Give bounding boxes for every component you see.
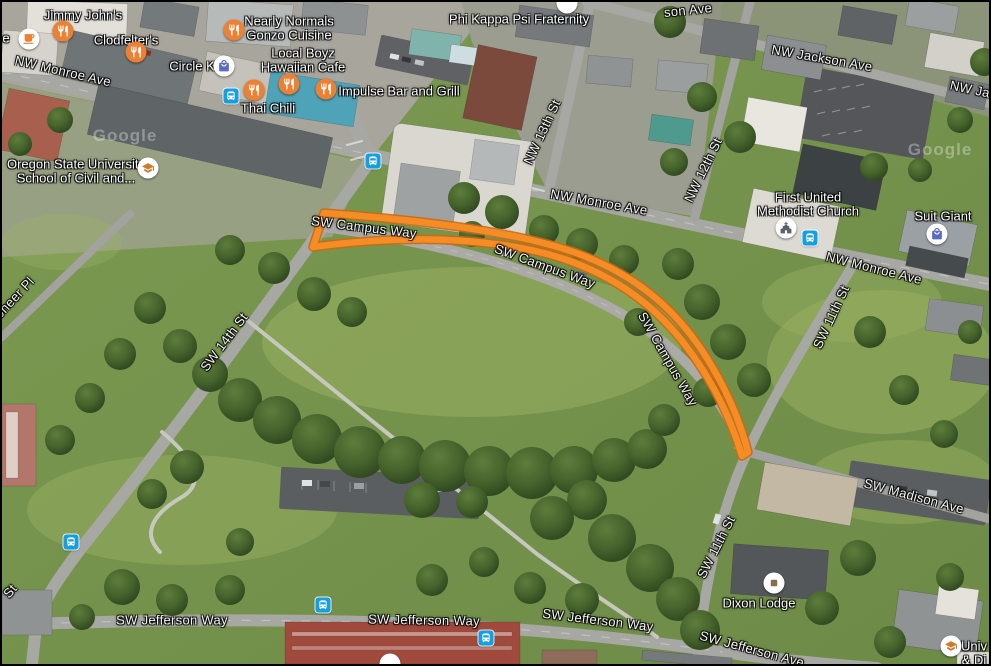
bus-stop-icon[interactable] [224, 89, 239, 104]
bus-stop-icon[interactable] [316, 598, 331, 613]
school-icon[interactable] [138, 158, 159, 179]
poi-label-first-united-methodist[interactable]: First UnitedMethodist Church [757, 191, 859, 218]
shopping-bag-icon[interactable] [927, 224, 948, 245]
restaurant-icon[interactable] [224, 20, 245, 41]
poi-label-university-partial[interactable]: Univ& Di [961, 640, 987, 666]
street-label-sw-jefferson-way-1: SW Jefferson Way [116, 614, 228, 627]
poi-label-dixon-lodge[interactable]: Dixon Lodge [723, 597, 796, 610]
map-viewport[interactable]: Google Google NW Monroe Ave NW Monroe Av… [0, 0, 991, 666]
poi-label-jimmy-johns[interactable]: Jimmy John's [44, 9, 122, 22]
bus-stop-icon[interactable] [64, 535, 79, 550]
church-icon[interactable] [776, 218, 797, 239]
restaurant-icon[interactable] [279, 74, 300, 95]
restaurant-icon[interactable] [126, 42, 147, 63]
lodge-icon[interactable] [764, 573, 785, 594]
poi-label-phi-kappa-psi[interactable]: Phi Kappa Psi Fraternity [449, 13, 589, 26]
cafe-icon[interactable] [19, 29, 40, 50]
bus-stop-icon[interactable] [479, 631, 494, 646]
poi-label-nearly-normals[interactable]: Nearly NormalsGonzo Cuisine [244, 15, 334, 42]
poi-label-local-boyz[interactable]: Local BoyzHawaiian Cafe [261, 47, 346, 74]
poi-label-thai-chili[interactable]: Thai Chili [241, 102, 295, 115]
poi-label-partial-e[interactable]: e [2, 32, 9, 45]
google-watermark: Google [908, 140, 973, 160]
bus-stop-icon[interactable] [366, 154, 381, 169]
poi-label-impulse-bar[interactable]: Impulse Bar and Grill [338, 85, 459, 98]
street-label-sw-jefferson-way-2: SW Jefferson Way [368, 613, 480, 628]
poi-label-suit-giant[interactable]: Suit Giant [914, 210, 971, 223]
google-watermark: Google [93, 126, 158, 146]
restaurant-icon[interactable] [316, 79, 337, 100]
school-icon[interactable] [941, 636, 962, 657]
poi-label-clodfelters[interactable]: Clodfelter's [94, 34, 159, 47]
bus-stop-icon[interactable] [803, 231, 818, 246]
poi-label-osu-school[interactable]: Oregon State UniversitySchool of Civil a… [7, 158, 145, 185]
restaurant-icon[interactable] [53, 21, 74, 42]
restaurant-icon[interactable] [244, 80, 265, 101]
satellite-imagery [2, 2, 989, 664]
poi-label-circle-k[interactable]: Circle K [169, 60, 215, 73]
shopping-bag-icon[interactable] [214, 56, 235, 77]
